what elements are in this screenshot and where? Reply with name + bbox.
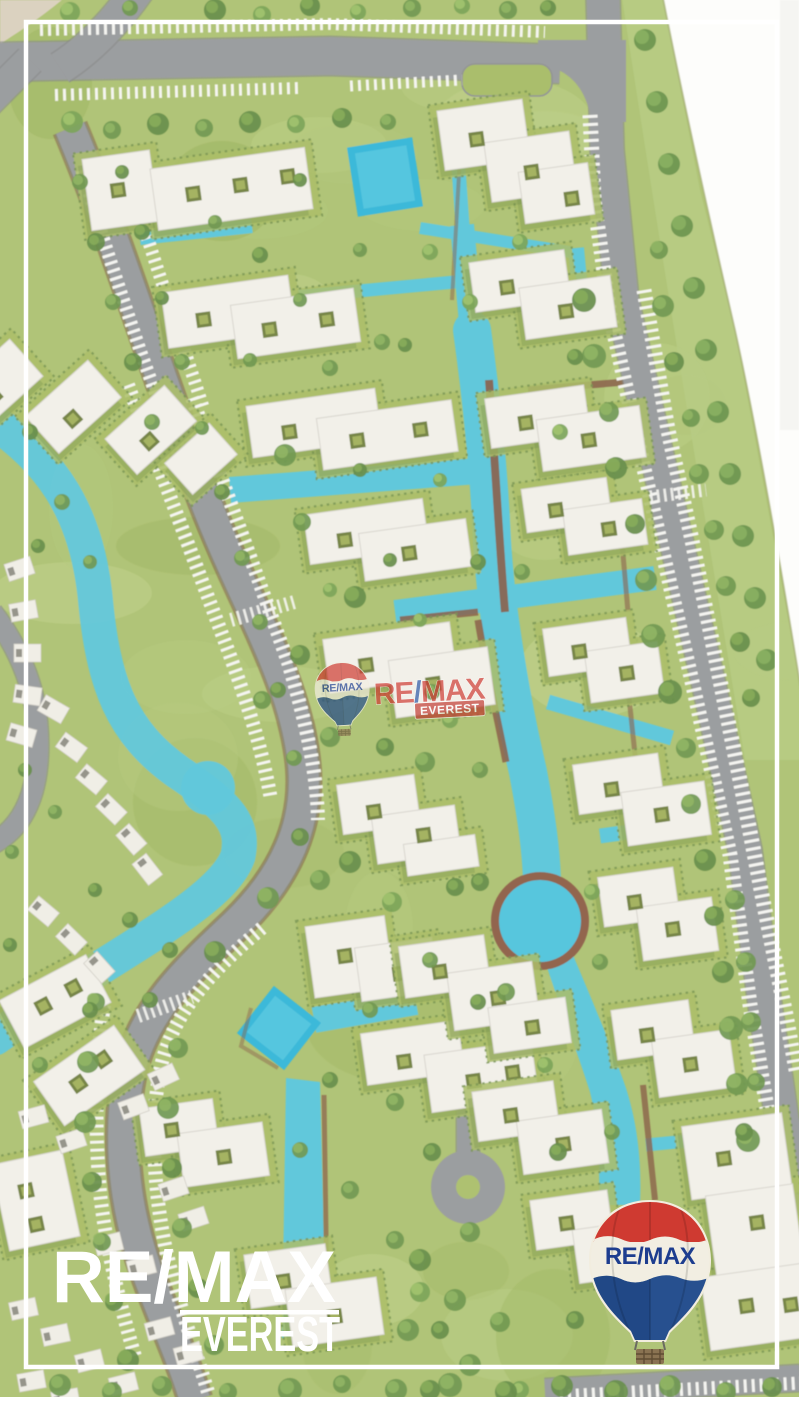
svg-text:RE/MAX: RE/MAX <box>52 1237 336 1318</box>
svg-text:EVEREST: EVEREST <box>180 1307 340 1361</box>
